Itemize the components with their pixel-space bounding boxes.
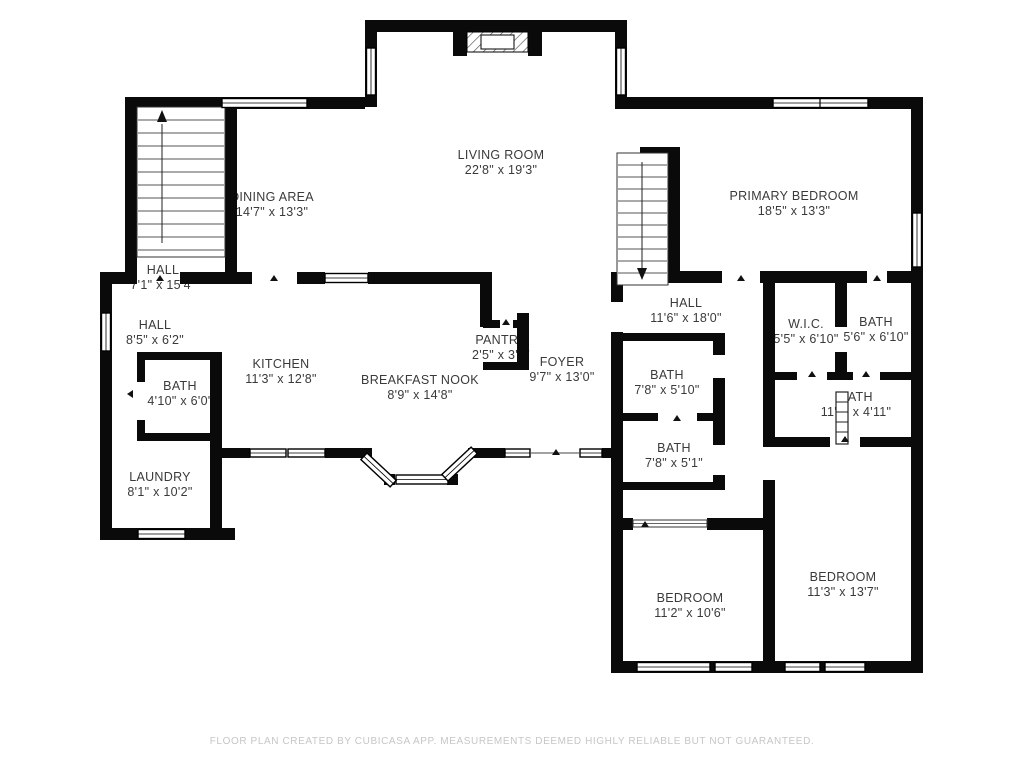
room-label-foyer: FOYER9'7" x 13'0" (529, 355, 594, 385)
room-label-bedroom-left: BEDROOM11'2" x 10'6" (654, 591, 726, 621)
room-label-wic: W.I.C.5'5" x 6'10" (773, 317, 838, 347)
room-label-bath-ensuite: BATH5'6" x 6'10" (843, 315, 908, 345)
room-label-bedroom-right: BEDROOM11'3" x 13'7" (807, 570, 879, 600)
room-label-bath-east: BATH11'3" x 4'11" (821, 390, 892, 420)
room-label-hall-center: HALL11'6" x 18'0" (650, 296, 722, 326)
staircase-left (137, 107, 225, 257)
room-label-hall-stairs: HALL7'1" x 15'4" (130, 263, 195, 293)
fireplace (453, 32, 542, 56)
floor-plan: DINING AREA14'7" x 13'3" LIVING ROOM22'8… (0, 0, 1024, 768)
room-label-living-room: LIVING ROOM22'8" x 19'3" (458, 148, 545, 178)
room-label-bath-hall-lower: BATH7'8" x 5'1" (645, 441, 703, 471)
room-label-hall-west: HALL8'5" x 6'2" (126, 318, 184, 348)
room-label-pantry: PANTRY2'5" x 3'1" (472, 333, 530, 363)
door-marks-group (127, 275, 881, 527)
closet-sliding-door (633, 520, 707, 527)
room-label-laundry: LAUNDRY8'1" x 10'2" (127, 470, 192, 500)
room-label-dining-area: DINING AREA14'7" x 13'3" (230, 190, 314, 220)
room-label-bath-west: BATH4'10" x 6'0" (147, 379, 212, 409)
room-label-bath-hall-upper: BATH7'8" x 5'10" (634, 368, 699, 398)
footer-disclaimer: FLOOR PLAN CREATED BY CUBICASA APP. MEAS… (210, 736, 815, 747)
room-label-breakfast-nook: BREAKFAST NOOK8'9" x 14'8" (361, 373, 479, 403)
room-label-primary-bedroom: PRIMARY BEDROOM18'5" x 13'3" (729, 189, 858, 219)
room-label-kitchen: KITCHEN11'3" x 12'8" (245, 357, 317, 387)
staircase-center (617, 153, 668, 285)
